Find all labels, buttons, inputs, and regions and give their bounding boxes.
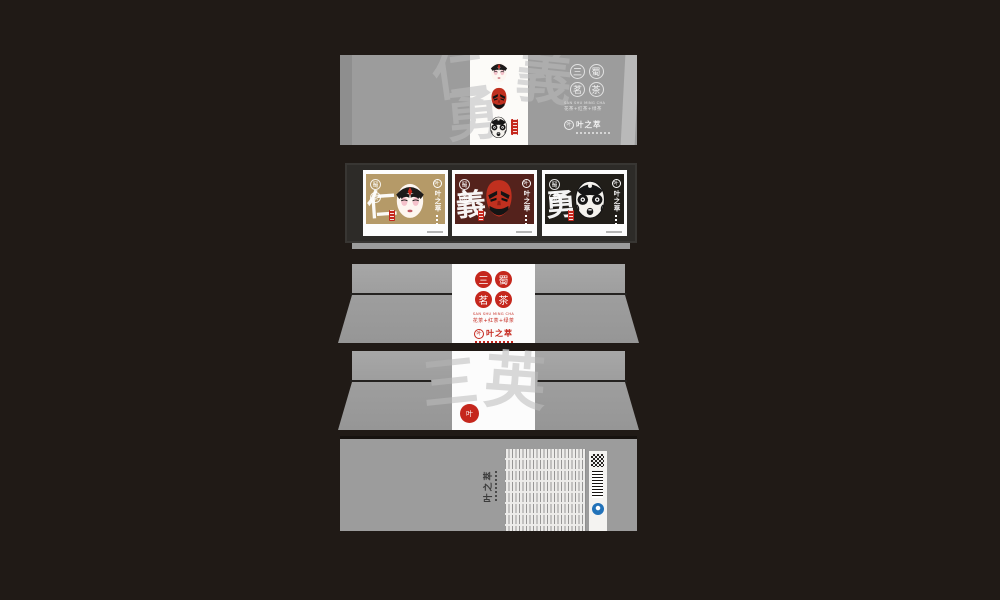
box-front-edge [352,243,630,249]
brand-logo: 叶 叶之萃 [474,328,513,339]
pack-face-gold: 蜀 茶 仁 叶 叶之萃 [366,174,445,224]
brand-mark: 叶 [466,409,473,419]
brand-name: 叶之萃 [432,190,442,213]
micro-caption-bar [516,231,532,233]
red-face-opera-mask-icon [480,177,518,221]
white-face-opera-mask-icon [391,177,429,221]
sleeve-white-band: 三 蜀 茗 茶 SAN SHU MING CHA 花茶+红茶+绿茶 叶 叶之萃 [452,264,535,343]
brand-mark-icon: 叶 [433,179,442,188]
title-seal: 三 [570,64,585,79]
tea-variants-line: 花茶+红茶+绿茶 [564,107,628,113]
watermark-char: 義 [513,55,528,110]
title-seal: 茶 [495,291,512,308]
sleeve-white-band: 三 英 叶 [452,351,535,430]
black-face-opera-mask-icon [570,176,610,222]
title-seal: 茗 [475,291,492,308]
watermark-char: 英 [482,351,535,415]
title-seal: 三 [475,271,492,288]
brand-red-seal: 叶 [460,404,479,423]
brand-logo-vertical: 叶 叶之萃 [611,179,621,224]
brand-mark-icon: 叶 [564,120,574,130]
title-seal: 茶 [589,82,604,97]
pinyin-line: SAN SHU MING CHA [564,101,628,106]
title-seal: 蜀 [589,64,604,79]
brand-name: 叶之萃 [481,470,494,503]
brand-tagline-bar [576,132,610,134]
brand-mark-icon: 叶 [474,329,484,339]
brand-tagline-bar [615,215,617,225]
tea-pack-benevolence: 蜀 茶 仁 叶 叶之萃 [363,170,448,236]
brand-logo: 叶 叶之萃 [564,119,628,130]
qs-certification-icon [592,503,604,515]
barcode-icon [592,471,603,498]
title-seal-grid: 三 蜀 茗 茶 [475,271,512,308]
title-seal-grid: 三 蜀 茗 茶 [570,64,604,97]
brand-name: 叶之萃 [611,190,621,213]
brand-tagline-bar [436,215,438,225]
red-seal-stamp [511,119,518,135]
sleeve-back-panel: 三 英 三 英 叶 [338,351,639,430]
pinyin-line: SAN SHU MING CHA [473,312,514,317]
brand-mark-icon: 叶 [522,179,531,188]
brand-tagline-bar [495,471,497,501]
lid-top-panel: 仁 義 勇 仁 義 勇 三 蜀 茗 茶 SAN SHU MING CHA 花茶+… [340,55,637,145]
box-bottom-panel: 叶之萃 [340,436,637,531]
lid-white-band: 仁 義 勇 [470,55,528,145]
brand-logo-vertical: 叶 叶之萃 [521,179,531,224]
red-face-opera-mask-icon [487,86,511,112]
open-box-tray: 蜀 茶 仁 叶 叶之萃 蜀 茶 義 [345,163,637,243]
tea-pack-righteousness: 蜀 茶 義 叶 叶之萃 [452,170,537,236]
brand-mark-icon: 叶 [612,179,621,188]
brand-tagline-bar [525,215,527,225]
brand-name: 叶之萃 [486,328,513,339]
sleeve-front-panel: 三 蜀 茗 茶 SAN SHU MING CHA 花茶+红茶+绿茶 叶 叶之萃 [338,264,639,343]
brand-logo-vertical: 叶 叶之萃 [432,179,442,224]
brand-name: 叶之萃 [521,190,531,213]
tea-variants-line: 花茶+红茶+绿茶 [473,318,515,325]
white-face-opera-mask-icon [487,58,511,84]
pack-face-maroon: 蜀 茶 義 叶 叶之萃 [455,174,534,224]
pack-face-black: 蜀 茶 勇 叶 叶之萃 [545,174,624,224]
lid-brand-block: 三 蜀 茗 茶 SAN SHU MING CHA 花茶+红茶+绿茶 叶 叶之萃 [564,64,628,134]
micro-caption-bar [606,231,622,233]
code-strip [589,451,607,531]
packaging-mockup-poster: 仁 義 勇 仁 義 勇 三 蜀 茗 茶 SAN SHU MING CHA 花茶+… [0,0,1000,600]
brand-logo-rotated: 叶之萃 [481,460,499,512]
qr-code-icon [591,454,604,467]
tea-pack-courage: 蜀 茶 勇 叶 叶之萃 [542,170,627,236]
micro-caption-bar [427,231,443,233]
title-seal: 蜀 [495,271,512,288]
brand-name: 叶之萃 [576,119,602,130]
black-face-opera-mask-icon [486,114,511,140]
title-seal: 茗 [570,82,585,97]
product-info-text-block [505,449,586,531]
brand-tagline-bar [475,341,513,343]
